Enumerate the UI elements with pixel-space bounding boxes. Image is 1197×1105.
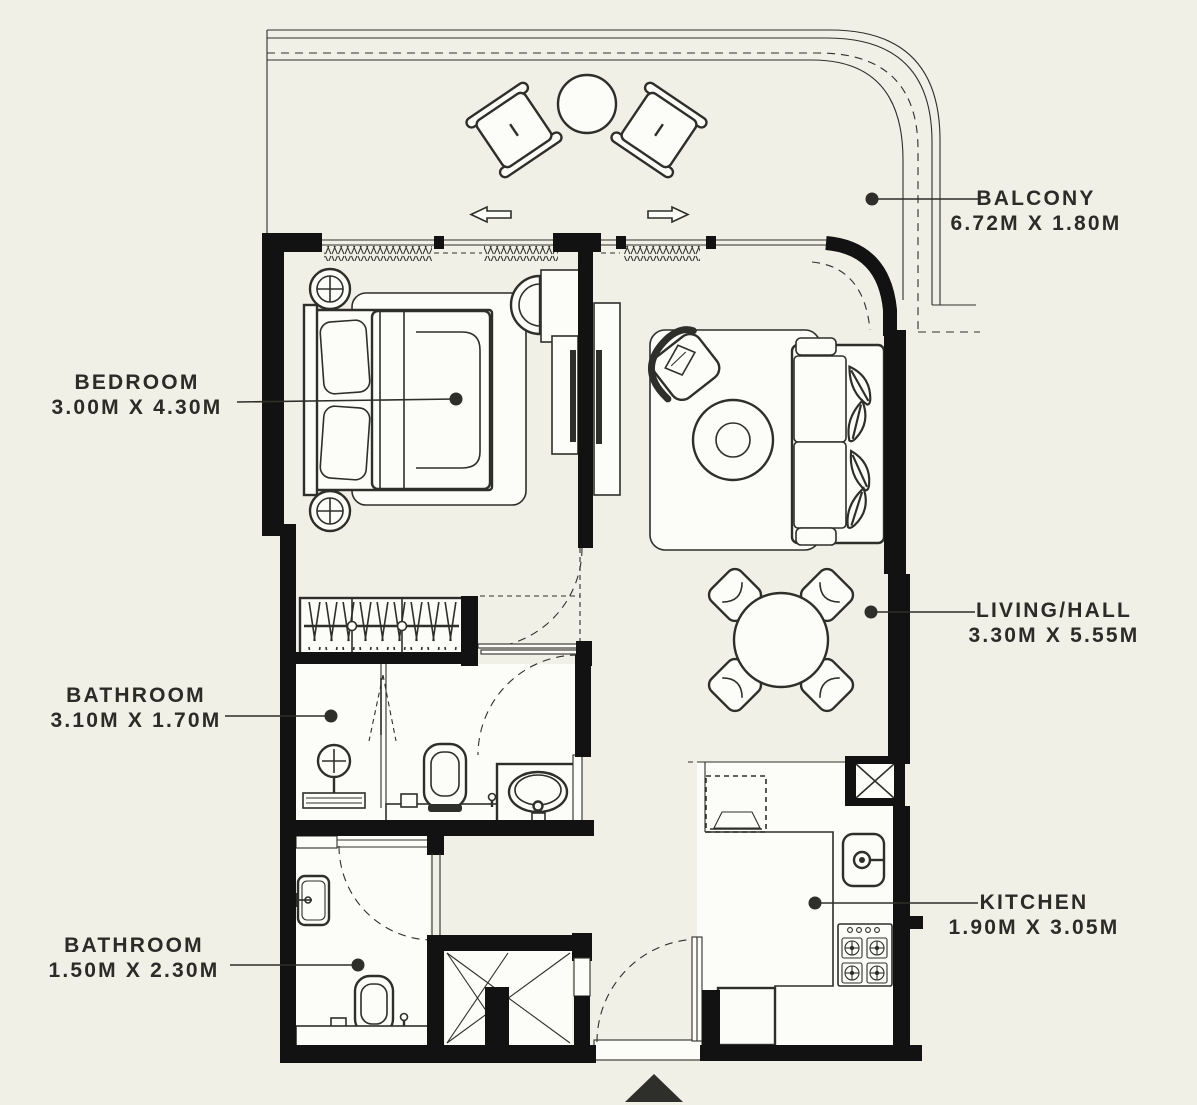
room-dims: 1.50M X 2.30M xyxy=(24,958,244,983)
room-name: BALCONY xyxy=(926,186,1146,211)
curtain-icon xyxy=(624,246,700,261)
balcony-chair-right-icon xyxy=(610,81,709,179)
room-dims: 3.00M X 4.30M xyxy=(27,395,247,420)
pillow-icon xyxy=(320,319,371,394)
entry xyxy=(594,937,702,1102)
tv-icon xyxy=(570,350,576,442)
label-bathroom-bottom: BATHROOM 1.50M X 2.30M xyxy=(24,933,244,983)
bedroom-door-arc xyxy=(482,548,582,648)
tv-icon xyxy=(596,350,602,444)
label-bathroom-top: BATHROOM 3.10M X 1.70M xyxy=(26,683,246,733)
label-balcony: BALCONY 6.72M X 1.80M xyxy=(926,186,1146,236)
vanity-sink-icon xyxy=(497,764,578,822)
label-living: LIVING/HALL 3.30M X 5.55M xyxy=(944,598,1164,648)
curtain-icon xyxy=(484,246,558,261)
room-name: LIVING/HALL xyxy=(944,598,1164,623)
door-leaf xyxy=(573,755,582,821)
balcony-furniture xyxy=(465,75,709,222)
label-kitchen: KITCHEN 1.90M X 3.05M xyxy=(924,890,1144,940)
room-name: BATHROOM xyxy=(24,933,244,958)
desk-icon xyxy=(541,270,583,342)
pillow-icon xyxy=(320,405,371,480)
coffee-table-icon xyxy=(693,400,773,480)
living-furniture xyxy=(594,262,884,715)
room-dims: 3.30M X 5.55M xyxy=(944,623,1164,648)
room-dims: 6.72M X 1.80M xyxy=(926,211,1146,236)
sofa-icon xyxy=(792,338,884,545)
gas-hob-icon xyxy=(838,924,892,986)
kitchen-sink-icon xyxy=(843,834,884,886)
entry-door-arc xyxy=(597,939,700,1042)
bath-threshold xyxy=(296,1026,432,1047)
sliding-door xyxy=(478,644,581,654)
floor-plan: BEDROOM 3.00M X 4.30M BATHROOM 3.10M X 1… xyxy=(0,0,1197,1105)
dining-table-icon xyxy=(734,593,828,687)
curtain-icon xyxy=(324,246,432,261)
room-name: BEDROOM xyxy=(27,370,247,395)
bedside-table-icon xyxy=(310,491,350,531)
curtain-arc xyxy=(812,262,870,330)
refrigerator-icon xyxy=(718,988,775,1045)
room-dims: 1.90M X 3.05M xyxy=(924,915,1144,940)
washbasin-icon xyxy=(293,876,329,925)
label-bedroom: BEDROOM 3.00M X 4.30M xyxy=(27,370,247,420)
balcony-boundary xyxy=(267,30,980,332)
entry-arrow-icon xyxy=(625,1074,683,1102)
entry-threshold xyxy=(594,1040,702,1060)
slide-arrow-left-icon xyxy=(471,207,511,222)
wardrobe xyxy=(300,598,463,654)
bedside-table-icon xyxy=(310,269,350,309)
partition-wall xyxy=(578,252,593,548)
balcony-table-icon xyxy=(558,75,616,133)
curved-wall xyxy=(826,243,890,336)
dining-set-icon xyxy=(705,565,856,714)
room-dims: 3.10M X 1.70M xyxy=(26,708,246,733)
slide-arrow-right-icon xyxy=(648,207,688,222)
balcony-chair-left-icon xyxy=(465,81,564,179)
room-name: BATHROOM xyxy=(26,683,246,708)
room-name: KITCHEN xyxy=(924,890,1144,915)
